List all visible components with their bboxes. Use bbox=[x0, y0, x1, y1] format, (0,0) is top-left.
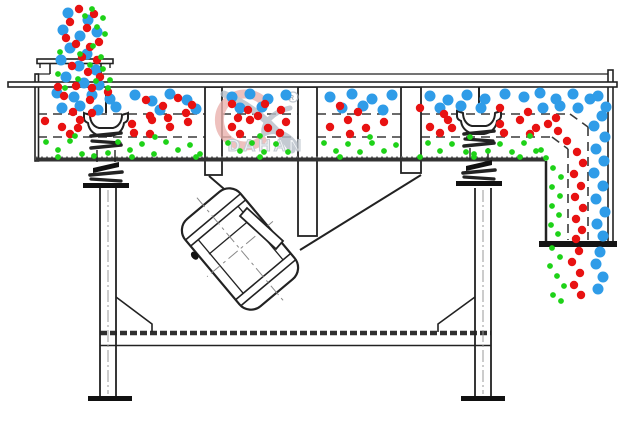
particle-blue bbox=[591, 144, 602, 155]
particle-red bbox=[346, 130, 354, 138]
particle-red bbox=[576, 269, 584, 277]
particle-green bbox=[467, 134, 473, 140]
particle-red bbox=[496, 120, 504, 128]
support-leg-left bbox=[88, 188, 132, 401]
particle-green bbox=[55, 154, 61, 160]
outlet-red bbox=[568, 247, 585, 299]
particle-green bbox=[102, 31, 108, 37]
particle-green bbox=[139, 141, 145, 147]
particle-red bbox=[72, 82, 80, 90]
particle-blue bbox=[58, 25, 69, 36]
particle-blue bbox=[600, 207, 611, 218]
particle-green bbox=[369, 140, 375, 146]
particle-green bbox=[321, 140, 327, 146]
particle-red bbox=[577, 182, 585, 190]
particle-red bbox=[54, 83, 62, 91]
particle-green bbox=[393, 142, 399, 148]
particle-red bbox=[72, 40, 80, 48]
particle-blue bbox=[519, 92, 530, 103]
particle-blue bbox=[443, 95, 454, 106]
particle-red bbox=[228, 123, 236, 131]
particle-green bbox=[79, 151, 85, 157]
particle-red bbox=[83, 24, 91, 32]
particle-blue bbox=[378, 105, 389, 116]
particle-red bbox=[148, 116, 156, 124]
particle-green bbox=[72, 133, 78, 139]
particle-red bbox=[66, 18, 74, 26]
particle-red bbox=[282, 118, 290, 126]
particle-red bbox=[563, 137, 571, 145]
particle-blue bbox=[425, 91, 436, 102]
particle-green bbox=[90, 43, 96, 49]
particle-red bbox=[254, 112, 262, 120]
particle-green bbox=[151, 151, 157, 157]
particle-green bbox=[527, 133, 533, 139]
particle-red bbox=[524, 108, 532, 116]
particle-blue bbox=[57, 103, 68, 114]
particle-green bbox=[77, 51, 83, 57]
outlet-green bbox=[547, 245, 567, 304]
particle-blue bbox=[599, 156, 610, 167]
particle-red bbox=[76, 116, 84, 124]
particle-red bbox=[573, 148, 581, 156]
foot-pad-right bbox=[461, 396, 505, 401]
particle-green bbox=[549, 184, 555, 190]
particle-red bbox=[62, 34, 70, 42]
particle-red bbox=[362, 124, 370, 132]
particle-blue bbox=[61, 72, 72, 83]
particle-red bbox=[516, 116, 524, 124]
particle-blue bbox=[63, 8, 74, 19]
particle-green bbox=[93, 78, 99, 84]
particle-red bbox=[74, 124, 82, 132]
particle-green bbox=[549, 203, 555, 209]
particle-red bbox=[496, 104, 504, 112]
particle-red bbox=[234, 114, 242, 122]
particle-red bbox=[228, 100, 236, 108]
particle-blue bbox=[476, 103, 487, 114]
particle-green bbox=[558, 298, 564, 304]
particle-green bbox=[43, 139, 49, 145]
particle-blue bbox=[598, 231, 609, 242]
particle-green bbox=[367, 134, 373, 140]
particle-red bbox=[570, 281, 578, 289]
particle-green bbox=[381, 148, 387, 154]
particle-green bbox=[257, 154, 263, 160]
particle-blue bbox=[591, 194, 602, 205]
particle-green bbox=[548, 222, 554, 228]
particle-red bbox=[448, 124, 456, 132]
particle-green bbox=[57, 49, 63, 55]
particle-red bbox=[577, 291, 585, 299]
particle-red bbox=[95, 38, 103, 46]
particle-red bbox=[554, 127, 562, 135]
particle-blue bbox=[568, 89, 579, 100]
particle-red bbox=[164, 114, 172, 122]
particle-red bbox=[264, 124, 272, 132]
particle-blue bbox=[387, 90, 398, 101]
particle-red bbox=[261, 100, 269, 108]
particle-red bbox=[142, 96, 150, 104]
particle-blue bbox=[325, 92, 336, 103]
particle-blue bbox=[130, 90, 141, 101]
particle-red bbox=[86, 96, 94, 104]
particle-red bbox=[277, 106, 285, 114]
particle-green bbox=[449, 141, 455, 147]
particles-layer bbox=[41, 5, 612, 304]
particle-green bbox=[100, 66, 106, 72]
particle-green bbox=[105, 150, 111, 156]
particle-green bbox=[547, 263, 553, 269]
particle-green bbox=[549, 245, 555, 251]
particle-red bbox=[188, 101, 196, 109]
particle-red bbox=[380, 118, 388, 126]
support-frame bbox=[88, 188, 505, 401]
particle-green bbox=[163, 139, 169, 145]
particle-red bbox=[184, 118, 192, 126]
particle-green bbox=[521, 140, 527, 146]
particle-green bbox=[509, 149, 515, 155]
particle-red bbox=[571, 193, 579, 201]
support-leg-right bbox=[461, 188, 505, 401]
particle-green bbox=[556, 212, 562, 218]
particle-green bbox=[175, 147, 181, 153]
particle-green bbox=[543, 155, 549, 161]
particle-red bbox=[174, 94, 182, 102]
particle-green bbox=[471, 154, 477, 160]
particle-green bbox=[94, 24, 100, 30]
particle-green bbox=[237, 148, 243, 154]
particle-blue bbox=[555, 101, 566, 112]
gusset-left bbox=[116, 297, 152, 332]
particle-green bbox=[345, 141, 351, 147]
particle-green bbox=[357, 149, 363, 155]
gusset-right bbox=[438, 297, 475, 332]
particle-green bbox=[82, 13, 88, 19]
particle-green bbox=[152, 134, 158, 140]
foot-pad-left bbox=[88, 396, 132, 401]
particle-green bbox=[89, 6, 95, 12]
particle-red bbox=[532, 124, 540, 132]
deck1-blue bbox=[130, 88, 612, 116]
particle-blue bbox=[500, 89, 511, 100]
particle-red bbox=[88, 84, 96, 92]
particle-red bbox=[572, 235, 580, 243]
particle-red bbox=[336, 102, 344, 110]
particle-green bbox=[285, 149, 291, 155]
particle-blue bbox=[593, 91, 604, 102]
particle-green bbox=[193, 154, 199, 160]
particle-green bbox=[249, 140, 255, 146]
particle-green bbox=[517, 154, 523, 160]
particle-green bbox=[337, 154, 343, 160]
particle-red bbox=[276, 129, 284, 137]
particle-blue bbox=[595, 247, 606, 258]
particle-red bbox=[436, 129, 444, 137]
particle-red bbox=[552, 114, 560, 122]
particle-red bbox=[578, 226, 586, 234]
particle-red bbox=[344, 116, 352, 124]
particle-red bbox=[544, 120, 552, 128]
particle-blue bbox=[69, 92, 80, 103]
particle-green bbox=[555, 231, 561, 237]
particle-green bbox=[261, 149, 267, 155]
particle-red bbox=[84, 68, 92, 76]
particle-green bbox=[115, 139, 121, 145]
outlet-blue bbox=[591, 247, 609, 295]
particle-green bbox=[557, 193, 563, 199]
motor-mount-arm-right bbox=[300, 175, 421, 250]
particle-green bbox=[538, 147, 544, 153]
particle-red bbox=[575, 247, 583, 255]
particle-blue bbox=[538, 103, 549, 114]
particle-red bbox=[69, 108, 77, 116]
particle-green bbox=[557, 254, 563, 260]
particle-blue bbox=[600, 132, 611, 143]
particle-green bbox=[333, 148, 339, 154]
particle-green bbox=[533, 148, 539, 154]
particle-blue bbox=[245, 89, 256, 100]
particle-blue bbox=[281, 90, 292, 101]
particle-green bbox=[561, 283, 567, 289]
particle-blue bbox=[367, 94, 378, 105]
particle-red bbox=[182, 109, 190, 117]
particle-green bbox=[91, 153, 97, 159]
particle-blue bbox=[535, 88, 546, 99]
particle-blue bbox=[347, 89, 358, 100]
particle-red bbox=[570, 170, 578, 178]
particle-blue bbox=[593, 284, 604, 295]
particle-red bbox=[572, 215, 580, 223]
particle-red bbox=[60, 92, 68, 100]
particle-blue bbox=[591, 259, 602, 270]
particle-blue bbox=[456, 101, 467, 112]
particle-green bbox=[75, 76, 81, 82]
particle-red bbox=[426, 123, 434, 131]
particle-green bbox=[437, 148, 443, 154]
particle-green bbox=[107, 77, 113, 83]
particle-red bbox=[354, 108, 362, 116]
particle-blue bbox=[462, 90, 473, 101]
particle-green bbox=[187, 142, 193, 148]
particle-blue bbox=[56, 55, 67, 66]
box-right-wall bbox=[608, 70, 613, 242]
particle-red bbox=[58, 123, 66, 131]
particle-blue bbox=[597, 111, 608, 122]
particle-green bbox=[98, 54, 104, 60]
particle-green bbox=[55, 71, 61, 77]
particle-green bbox=[105, 85, 111, 91]
particle-green bbox=[554, 273, 560, 279]
particle-green bbox=[257, 133, 263, 139]
particle-green bbox=[225, 140, 231, 146]
particle-blue bbox=[589, 121, 600, 132]
particle-red bbox=[236, 130, 244, 138]
particle-green bbox=[550, 292, 556, 298]
particle-green bbox=[417, 154, 423, 160]
particle-green bbox=[100, 15, 106, 21]
particle-red bbox=[500, 129, 508, 137]
particle-green bbox=[485, 148, 491, 154]
particle-red bbox=[41, 117, 49, 125]
particle-green bbox=[425, 140, 431, 146]
particle-red bbox=[416, 104, 424, 112]
particle-red bbox=[444, 116, 452, 124]
particle-green bbox=[497, 141, 503, 147]
particle-red bbox=[75, 5, 83, 13]
particle-green bbox=[129, 154, 135, 160]
particle-red bbox=[166, 123, 174, 131]
particle-green bbox=[273, 141, 279, 147]
vibration-motor bbox=[164, 170, 316, 328]
particle-blue bbox=[589, 168, 600, 179]
particle-blue bbox=[111, 102, 122, 113]
particle-red bbox=[68, 62, 76, 70]
particle-red bbox=[244, 106, 252, 114]
particle-green bbox=[55, 147, 61, 153]
particle-red bbox=[568, 258, 576, 266]
diagram-canvas: R DAHAN bbox=[0, 0, 638, 428]
particle-red bbox=[128, 120, 136, 128]
particle-red bbox=[326, 123, 334, 131]
particle-green bbox=[550, 165, 556, 171]
particle-red bbox=[88, 109, 96, 117]
particle-green bbox=[87, 62, 93, 68]
particle-green bbox=[558, 174, 564, 180]
particle-blue bbox=[573, 103, 584, 114]
particle-red bbox=[159, 102, 167, 110]
particle-green bbox=[127, 147, 133, 153]
particle-red bbox=[579, 159, 587, 167]
linear-vibrating-screen-diagram: R DAHAN bbox=[0, 0, 638, 428]
particle-red bbox=[246, 116, 254, 124]
particle-blue bbox=[598, 181, 609, 192]
particle-blue bbox=[592, 219, 603, 230]
particle-green bbox=[62, 85, 68, 91]
particle-red bbox=[130, 129, 138, 137]
particle-green bbox=[67, 138, 73, 144]
particle-green bbox=[463, 149, 469, 155]
particle-red bbox=[579, 204, 587, 212]
chute-red bbox=[554, 127, 587, 243]
particle-blue bbox=[598, 272, 609, 283]
vibration-motor-assembly bbox=[164, 170, 421, 328]
